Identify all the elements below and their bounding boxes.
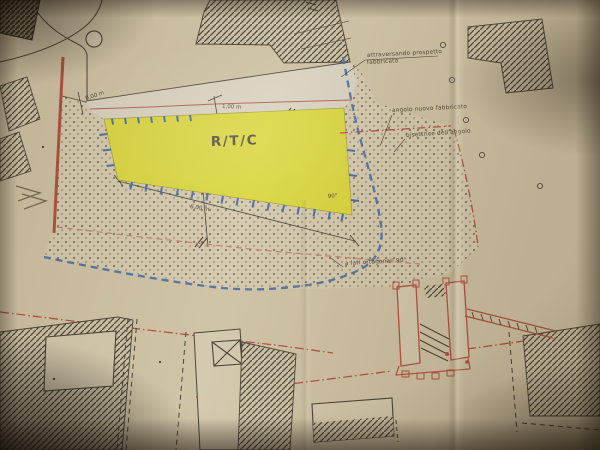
label-attraversamento-2: fabbricato — [367, 58, 399, 66]
building-bottom-left-court — [44, 331, 116, 391]
label-attraversamento-1: attraversando prospetto — [367, 49, 443, 59]
bottom-structures — [0, 317, 600, 450]
building-area-label: R/T/C — [211, 132, 259, 150]
label-angolo: angolo nuovo fabbricato — [392, 104, 468, 114]
site-plan-drawing: R/T/C attraversando prospetto fabbricato… — [0, 0, 600, 450]
manhole-circle — [86, 31, 102, 47]
building-top-right — [468, 19, 553, 93]
dimension-one: 1,00 m — [222, 104, 242, 111]
slope-chevrons — [16, 186, 46, 209]
building-left-edge-b — [0, 132, 31, 181]
building-top-middle — [196, 0, 350, 63]
building-top-left-corner — [0, 0, 40, 40]
building-bottom-right — [523, 324, 600, 416]
building-left-edge-a — [0, 77, 40, 131]
dimension-right-angle: 90° — [328, 193, 339, 200]
photographed-site-plan: R/T/C attraversando prospetto fabbricato… — [0, 0, 600, 450]
